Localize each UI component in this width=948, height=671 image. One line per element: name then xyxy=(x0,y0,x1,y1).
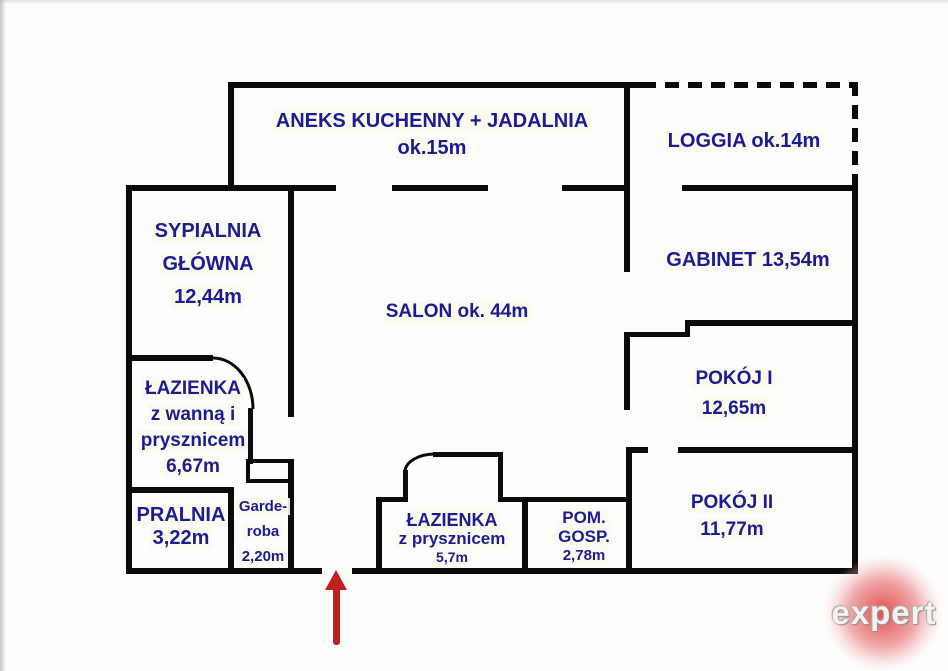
salon-name: SALON ok. 44m xyxy=(383,301,532,322)
entrance-arrow-icon xyxy=(322,570,352,650)
room-label-pokoj2: POKÓJ II 11,77m xyxy=(652,489,812,543)
bathroom-small-desc: z prysznicem xyxy=(396,529,509,548)
utility-name-2: GOSP. xyxy=(555,527,613,546)
bathroom-main-area: 6,67m xyxy=(163,456,223,477)
room-label-loggia: LOGGIA ok.14m xyxy=(654,129,834,153)
entrance-arrow-head xyxy=(325,570,347,590)
entrance-arrow-shaft xyxy=(333,585,340,645)
wardrobe-area: 2,20m xyxy=(239,548,288,565)
door-arcs xyxy=(0,0,948,671)
room-label-pralnia: PRALNIA 3,22m xyxy=(131,504,231,550)
utility-name-1: POM. xyxy=(559,508,608,527)
room-label-wardrobe: Garde- roba 2,20m xyxy=(232,494,294,569)
room-label-sypialnia: SYPIALNIA GŁÓWNA 12,44m xyxy=(118,215,298,314)
room-label-pokoj1: POKÓJ I 12,65m xyxy=(654,364,814,424)
bathroom-main-desc-2: prysznicem xyxy=(138,430,249,451)
pokoj2-name: POKÓJ II xyxy=(688,492,776,513)
pokoj1-area: 12,65m xyxy=(699,398,769,419)
sypialnia-name-1: SYPIALNIA xyxy=(152,220,265,242)
pokoj1-name: POKÓJ I xyxy=(692,368,775,389)
floor-plan: ANEKS KUCHENNY + JADALNIA ok.15m LOGGIA … xyxy=(0,0,948,671)
utility-area: 2,78m xyxy=(560,547,609,564)
room-label-kitchen: ANEKS KUCHENNY + JADALNIA ok.15m xyxy=(262,108,602,162)
room-label-utility: POM. GOSP. 2,78m xyxy=(534,508,634,565)
sypialnia-name-2: GŁÓWNA xyxy=(159,253,256,275)
pralnia-name: PRALNIA xyxy=(134,504,229,526)
pokoj2-area: 11,77m xyxy=(697,519,766,540)
bathroom-main-desc-1: z wanną i xyxy=(148,404,238,425)
bathroom-small-area: 5,7m xyxy=(433,549,471,565)
wardrobe-name-1: Garde- xyxy=(236,498,290,515)
loggia-name: LOGGIA ok.14m xyxy=(665,130,824,152)
room-label-salon: SALON ok. 44m xyxy=(357,300,557,324)
wardrobe-name-2: roba xyxy=(244,523,283,540)
kitchen-name: ANEKS KUCHENNY + JADALNIA xyxy=(273,110,591,132)
room-label-bathroom-main: ŁAZIENKA z wanną i prysznicem 6,67m xyxy=(132,376,254,480)
sypialnia-area: 12,44m xyxy=(171,286,245,308)
gabinet-name: GABINET 13,54m xyxy=(663,249,832,271)
pralnia-area: 3,22m xyxy=(150,527,213,549)
bathroom-main-name: ŁAZIENKA xyxy=(142,378,244,399)
room-label-bathroom-small: ŁAZIENKA z prysznicem 5,7m xyxy=(377,511,527,566)
watermark-logo: expert xyxy=(816,594,948,632)
kitchen-area: ok.15m xyxy=(395,137,470,159)
bathroom-small-name: ŁAZIENKA xyxy=(404,510,501,530)
room-label-gabinet: GABINET 13,54m xyxy=(638,248,858,272)
